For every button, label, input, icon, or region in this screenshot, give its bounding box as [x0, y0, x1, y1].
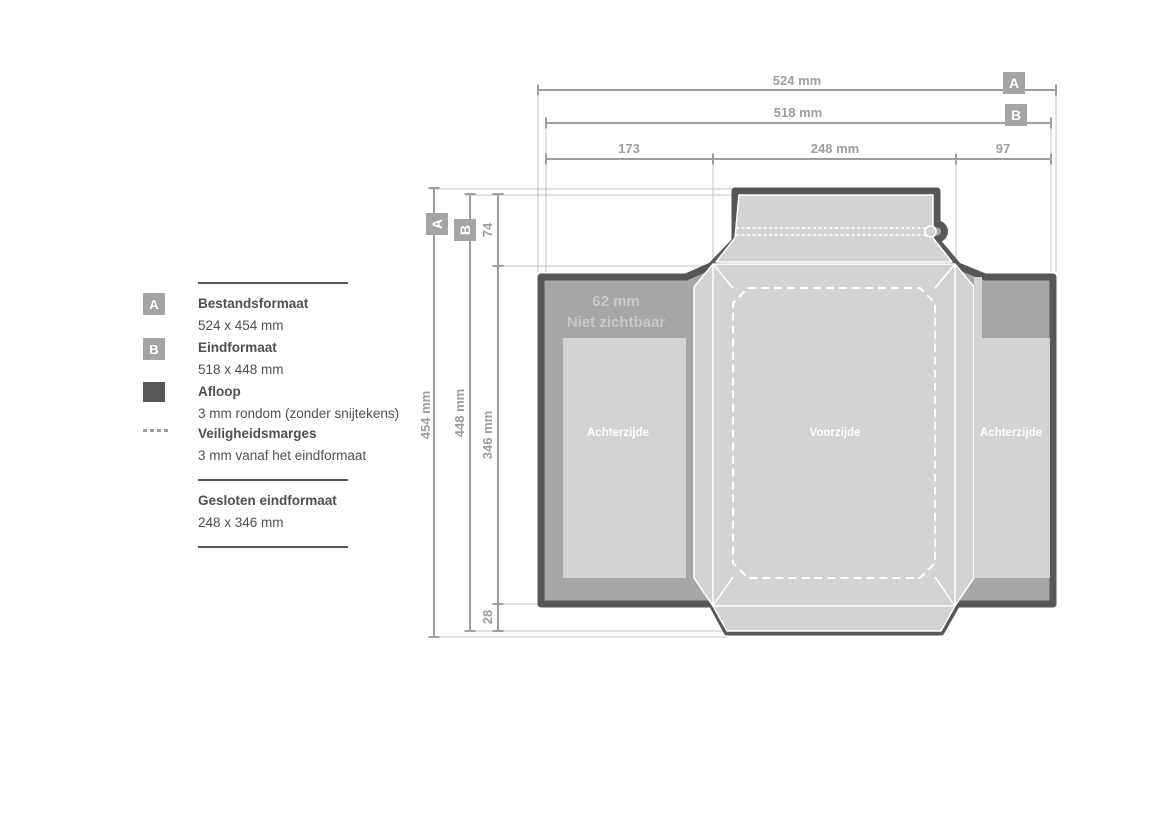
not-visible-note-line1: 62 mm: [592, 293, 640, 310]
badge-b-left-letter: B: [457, 225, 473, 235]
dim-label-248mm: 248 mm: [811, 141, 859, 156]
dimension-top-524: 524 mm A: [538, 72, 1056, 96]
dim-label-97: 97: [996, 141, 1010, 156]
dim-label-28: 28: [480, 610, 495, 624]
thumb-notch: [925, 226, 936, 237]
dimension-left-454: 454 mm A: [418, 188, 448, 637]
bottom-flap: [713, 606, 955, 631]
dimension-top-segments: 173 248 mm 97: [546, 141, 1051, 165]
dimension-top-518: 518 mm B: [546, 104, 1051, 129]
badge-b-top-letter: B: [1011, 107, 1021, 123]
badge-a-left-letter: A: [429, 219, 445, 229]
front-panel-label: Voorzijde: [810, 427, 861, 439]
dim-label-448mm: 448 mm: [452, 389, 467, 437]
dimension-left-segments: 74 346 mm 28: [480, 194, 504, 631]
dieline-spec-page: A Bestandsformaat 524 x 454 mm B Eindfor…: [0, 0, 1169, 827]
dim-label-524mm: 524 mm: [773, 73, 821, 88]
dim-label-173: 173: [618, 141, 640, 156]
badge-a-left: A: [426, 213, 448, 235]
dim-label-74: 74: [480, 222, 495, 237]
right-fold-sliver: [974, 277, 982, 339]
dim-label-346mm: 346 mm: [480, 411, 495, 459]
badge-a-top-letter: A: [1009, 75, 1019, 91]
dim-label-454mm: 454 mm: [418, 391, 433, 439]
back-panel-right: [974, 338, 1050, 578]
dimension-left-448: 448 mm B: [452, 194, 476, 631]
back-panel-left-label: Achterzijde: [587, 427, 649, 439]
badge-b-left: B: [454, 219, 476, 241]
top-flap: [716, 195, 952, 262]
dim-label-518mm: 518 mm: [774, 105, 822, 120]
back-panel-right-label: Achterzijde: [980, 427, 1042, 439]
back-panel-left: [563, 338, 686, 578]
envelope-dieline-diagram: 524 mm A 518 mm B 173 248 mm 97: [0, 0, 1169, 827]
not-visible-note-line2: Niet zichtbaar: [567, 314, 666, 331]
